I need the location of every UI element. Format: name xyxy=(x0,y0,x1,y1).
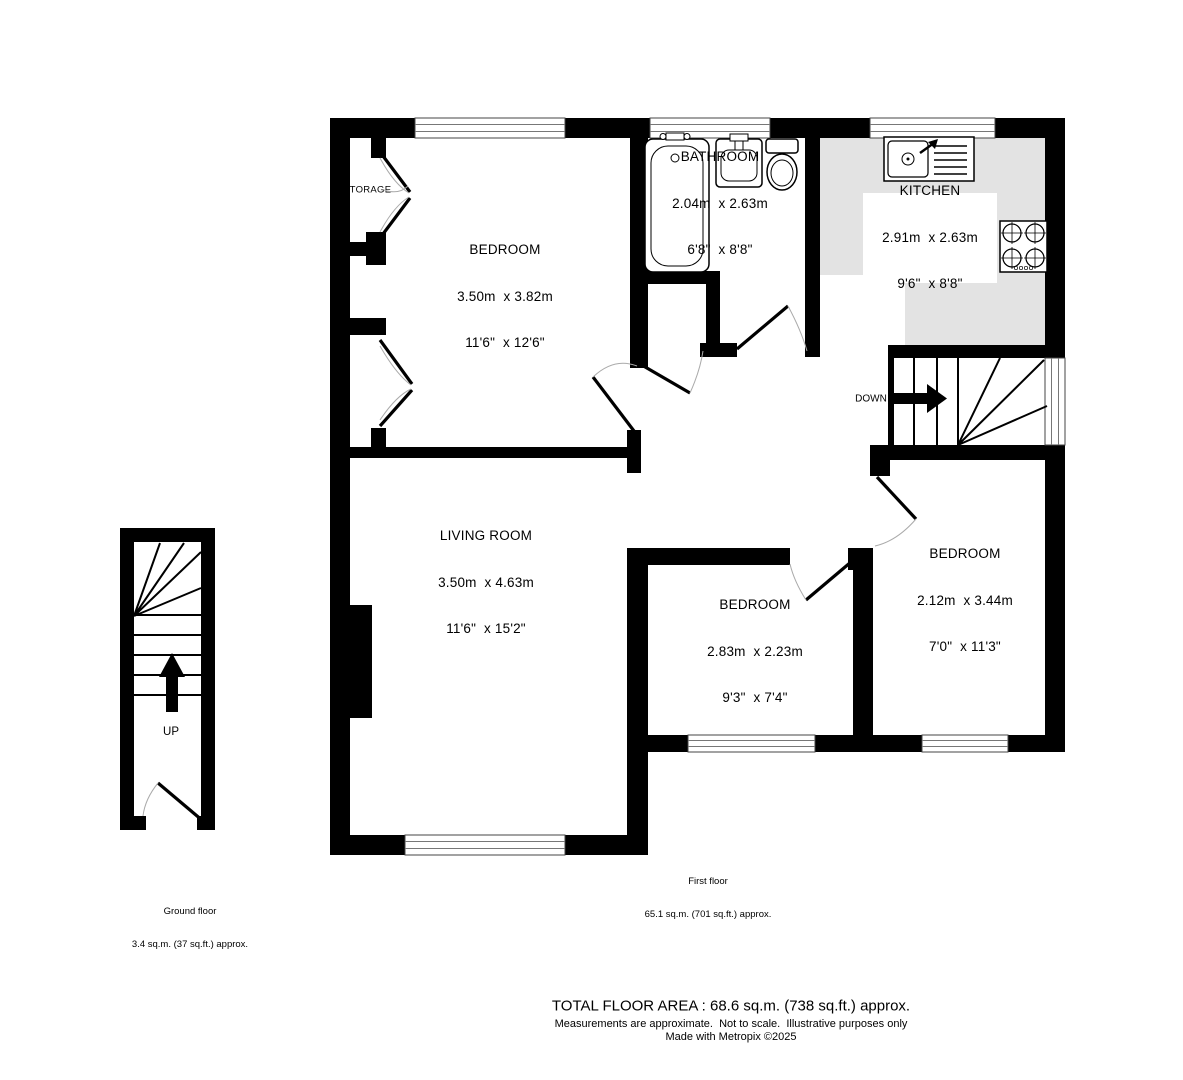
window-kitchen xyxy=(870,118,995,138)
window-living-room xyxy=(405,835,565,855)
room-dims-metric: 2.04m x 2.63m xyxy=(672,195,768,211)
floor-plan: STORAGE xyxy=(0,0,1183,1080)
wall-storage-stub1-block xyxy=(366,232,386,265)
up-label: UP xyxy=(163,726,179,738)
storage-bifold-doors-lower xyxy=(380,340,412,426)
wall-bedrooms-bottom xyxy=(627,735,1065,752)
wall-exterior-left xyxy=(330,118,350,855)
room-dims-imperial: 11'6" x 12'6" xyxy=(457,335,553,351)
stairs-ground-floor xyxy=(134,543,201,695)
wall-bedroom2-bedroom3-divider xyxy=(853,548,873,752)
floor-area: 3.4 sq.m. (37 sq.ft.) approx. xyxy=(132,939,248,950)
chimney-breast xyxy=(350,605,372,718)
wall-bedroom3-door-block xyxy=(870,445,890,476)
bedroom1-door xyxy=(593,363,637,431)
ground-floor-summary: Ground floor 3.4 sq.m. (37 sq.ft.) appro… xyxy=(132,884,248,972)
wall-bathroom-door-jamb xyxy=(700,343,737,357)
bathroom-door xyxy=(737,306,807,351)
floor-area: 65.1 sq.m. (701 sq.ft.) approx. xyxy=(645,909,772,920)
room-dims-metric: 2.12m x 3.44m xyxy=(917,592,1013,608)
room-dims-imperial: 6'8" x 8'8" xyxy=(672,242,768,258)
down-label: DOWN xyxy=(855,394,887,405)
wall-bedroom2-top xyxy=(632,548,790,565)
wall-storage-bottom-jamb xyxy=(371,428,386,447)
wall-gf-stairs-bottom-right xyxy=(197,816,215,830)
wall-stairs-top xyxy=(888,345,1065,358)
down-arrow-icon xyxy=(893,384,947,413)
room-name: LIVING ROOM xyxy=(438,528,534,544)
room-label-bedroom1: BEDROOM 3.50m x 3.82m 11'6" x 12'6" xyxy=(457,211,553,382)
room-dims-imperial: 11'6" x 15'2" xyxy=(438,621,534,637)
room-dims-metric: 3.50m x 4.63m xyxy=(438,574,534,590)
wall-bedroom1-living-divider xyxy=(330,447,637,458)
room-label-bedroom2: BEDROOM 2.83m x 2.23m 9'3" x 7'4" xyxy=(707,566,803,737)
room-name: KITCHEN xyxy=(882,183,978,199)
wall-gf-stairs-left xyxy=(120,528,134,830)
storage-label: STORAGE xyxy=(343,185,391,196)
room-label-kitchen: KITCHEN 2.91m x 2.63m 9'6" x 8'8" xyxy=(882,152,978,323)
wall-gf-stairs-right xyxy=(201,528,215,830)
wall-stairs-bottom xyxy=(870,445,1065,460)
total-floor-area: TOTAL FLOOR AREA : 68.6 sq.m. (738 sq.ft… xyxy=(552,998,910,1015)
window-bedroom3 xyxy=(922,735,1008,752)
wall-stairs-left-stub xyxy=(888,345,894,445)
room-label-bedroom3: BEDROOM 2.12m x 3.44m 7'0" x 11'3" xyxy=(917,515,1013,686)
window-stairwell xyxy=(1045,358,1065,445)
stairs-first-floor xyxy=(914,358,1047,445)
wall-gf-stairs-top xyxy=(120,528,215,542)
wall-living-bedroom2-divider xyxy=(627,548,648,855)
wall-exterior-right xyxy=(1045,118,1065,752)
wall-divider-block xyxy=(627,430,641,473)
wall-kitchen-left xyxy=(805,138,820,357)
wall-bedroom2-door-block xyxy=(848,548,873,570)
wall-gf-stairs-bottom-left xyxy=(120,816,146,830)
room-name: BEDROOM xyxy=(707,597,803,613)
room-dims-imperial: 9'3" x 7'4" xyxy=(707,690,803,706)
bedroom3-door xyxy=(875,477,916,546)
room-dims-imperial: 7'0" x 11'3" xyxy=(917,639,1013,655)
ground-floor-entrance-door xyxy=(143,783,203,821)
room-name: BEDROOM xyxy=(917,546,1013,562)
wall-storage-stub2 xyxy=(330,318,386,335)
first-floor-summary: First floor 65.1 sq.m. (701 sq.ft.) appr… xyxy=(645,854,772,942)
wall-storage-top-block xyxy=(371,135,386,158)
floor-name: Ground floor xyxy=(132,906,248,917)
room-label-bathroom: BATHROOM 2.04m x 2.63m 6'8" x 8'8" xyxy=(672,118,768,289)
wall-storage-stub1 xyxy=(330,242,368,256)
window-bedroom2 xyxy=(688,735,815,752)
cupboard-door xyxy=(640,351,703,393)
room-name: BEDROOM xyxy=(457,242,553,258)
hob-icon xyxy=(1000,221,1047,272)
wall-living-bottom xyxy=(330,835,648,855)
room-dims-imperial: 9'6" x 8'8" xyxy=(882,276,978,292)
floor-name: First floor xyxy=(645,876,772,887)
room-dims-metric: 2.91m x 2.63m xyxy=(882,229,978,245)
room-dims-metric: 2.83m x 2.23m xyxy=(707,643,803,659)
window-bedroom1 xyxy=(415,118,565,138)
room-name: BATHROOM xyxy=(672,149,768,165)
up-arrow-icon xyxy=(159,653,185,712)
footer-credit: Made with Metropix ©2025 xyxy=(665,1031,796,1043)
wall-bathroom-left xyxy=(630,138,648,368)
footer-disclaimer: Measurements are approximate. Not to sca… xyxy=(555,1018,908,1030)
toilet-icon xyxy=(766,139,798,190)
room-label-living-room: LIVING ROOM 3.50m x 4.63m 11'6" x 15'2" xyxy=(438,497,534,668)
room-dims-metric: 3.50m x 3.82m xyxy=(457,288,553,304)
